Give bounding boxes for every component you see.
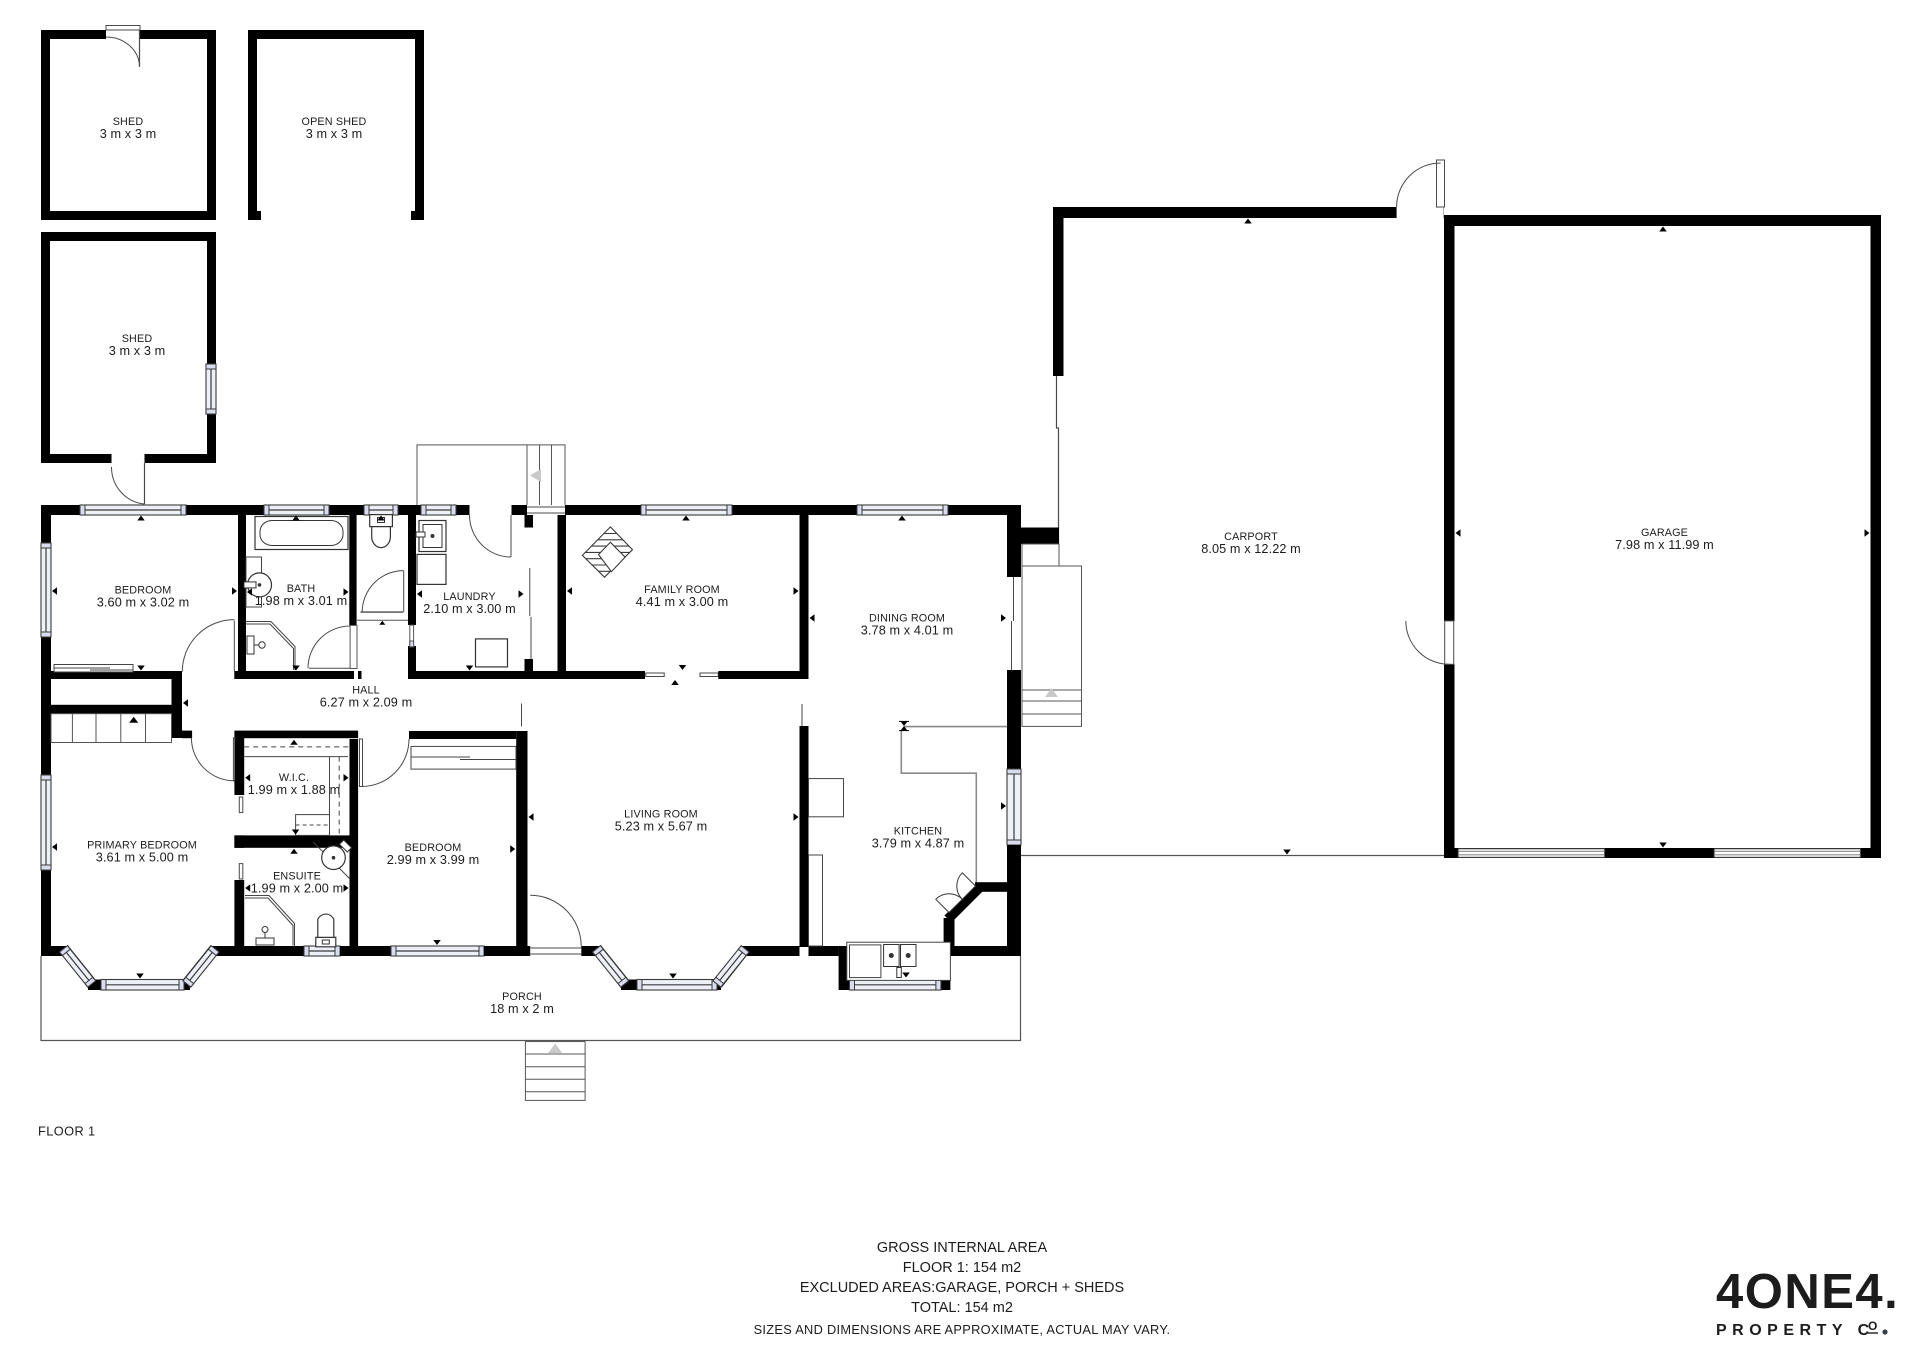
svg-text:2.10 m x 3.00 m: 2.10 m x 3.00 m: [423, 602, 515, 616]
svg-text:3 m x 3 m: 3 m x 3 m: [100, 127, 157, 141]
svg-text:6.27 m x 2.09 m: 6.27 m x 2.09 m: [320, 696, 412, 710]
svg-text:8.05 m x 12.22 m: 8.05 m x 12.22 m: [1201, 542, 1301, 556]
svg-text:PROPERTY C: PROPERTY C: [1716, 1322, 1875, 1339]
svg-text:3.60 m x 3.02 m: 3.60 m x 3.02 m: [97, 596, 189, 610]
svg-text:4.41 m x 3.00 m: 4.41 m x 3.00 m: [636, 595, 728, 609]
svg-text:3.78 m x 4.01 m: 3.78 m x 4.01 m: [861, 624, 953, 638]
svg-text:7.98 m x 11.99 m: 7.98 m x 11.99 m: [1615, 538, 1714, 552]
svg-text:FLOOR 1: 154 m2: FLOOR 1: 154 m2: [903, 1260, 1021, 1276]
svg-text:EXCLUDED AREAS:GARAGE, PORCH +: EXCLUDED AREAS:GARAGE, PORCH + SHEDS: [800, 1280, 1124, 1296]
svg-text:3 m x 3 m: 3 m x 3 m: [109, 344, 166, 358]
svg-text:3.61 m x 5.00 m: 3.61 m x 5.00 m: [96, 851, 188, 865]
svg-text:1.99 m x 2.00 m: 1.99 m x 2.00 m: [251, 882, 343, 896]
svg-text:SIZES AND DIMENSIONS ARE APPRO: SIZES AND DIMENSIONS ARE APPROXIMATE, AC…: [754, 1322, 1171, 1337]
svg-text:18 m x 2 m: 18 m x 2 m: [490, 1002, 554, 1016]
svg-text:5.23 m x 5.67 m: 5.23 m x 5.67 m: [615, 820, 707, 834]
svg-text:1.98 m x 3.01 m: 1.98 m x 3.01 m: [255, 594, 347, 608]
svg-text:O: O: [1868, 1319, 1877, 1333]
svg-text:3.79 m x 4.87 m: 3.79 m x 4.87 m: [872, 837, 964, 851]
svg-text:1.99 m x 1.88 m: 1.99 m x 1.88 m: [248, 783, 340, 797]
svg-text:3 m x 3 m: 3 m x 3 m: [306, 127, 363, 141]
svg-text:FLOOR 1: FLOOR 1: [38, 1124, 96, 1139]
svg-text:GROSS INTERNAL AREA: GROSS INTERNAL AREA: [877, 1240, 1048, 1256]
svg-text:4ONE4.: 4ONE4.: [1716, 1265, 1899, 1319]
svg-text:TOTAL: 154 m2: TOTAL: 154 m2: [911, 1300, 1013, 1316]
svg-text:2.99 m x 3.99 m: 2.99 m x 3.99 m: [387, 853, 479, 867]
